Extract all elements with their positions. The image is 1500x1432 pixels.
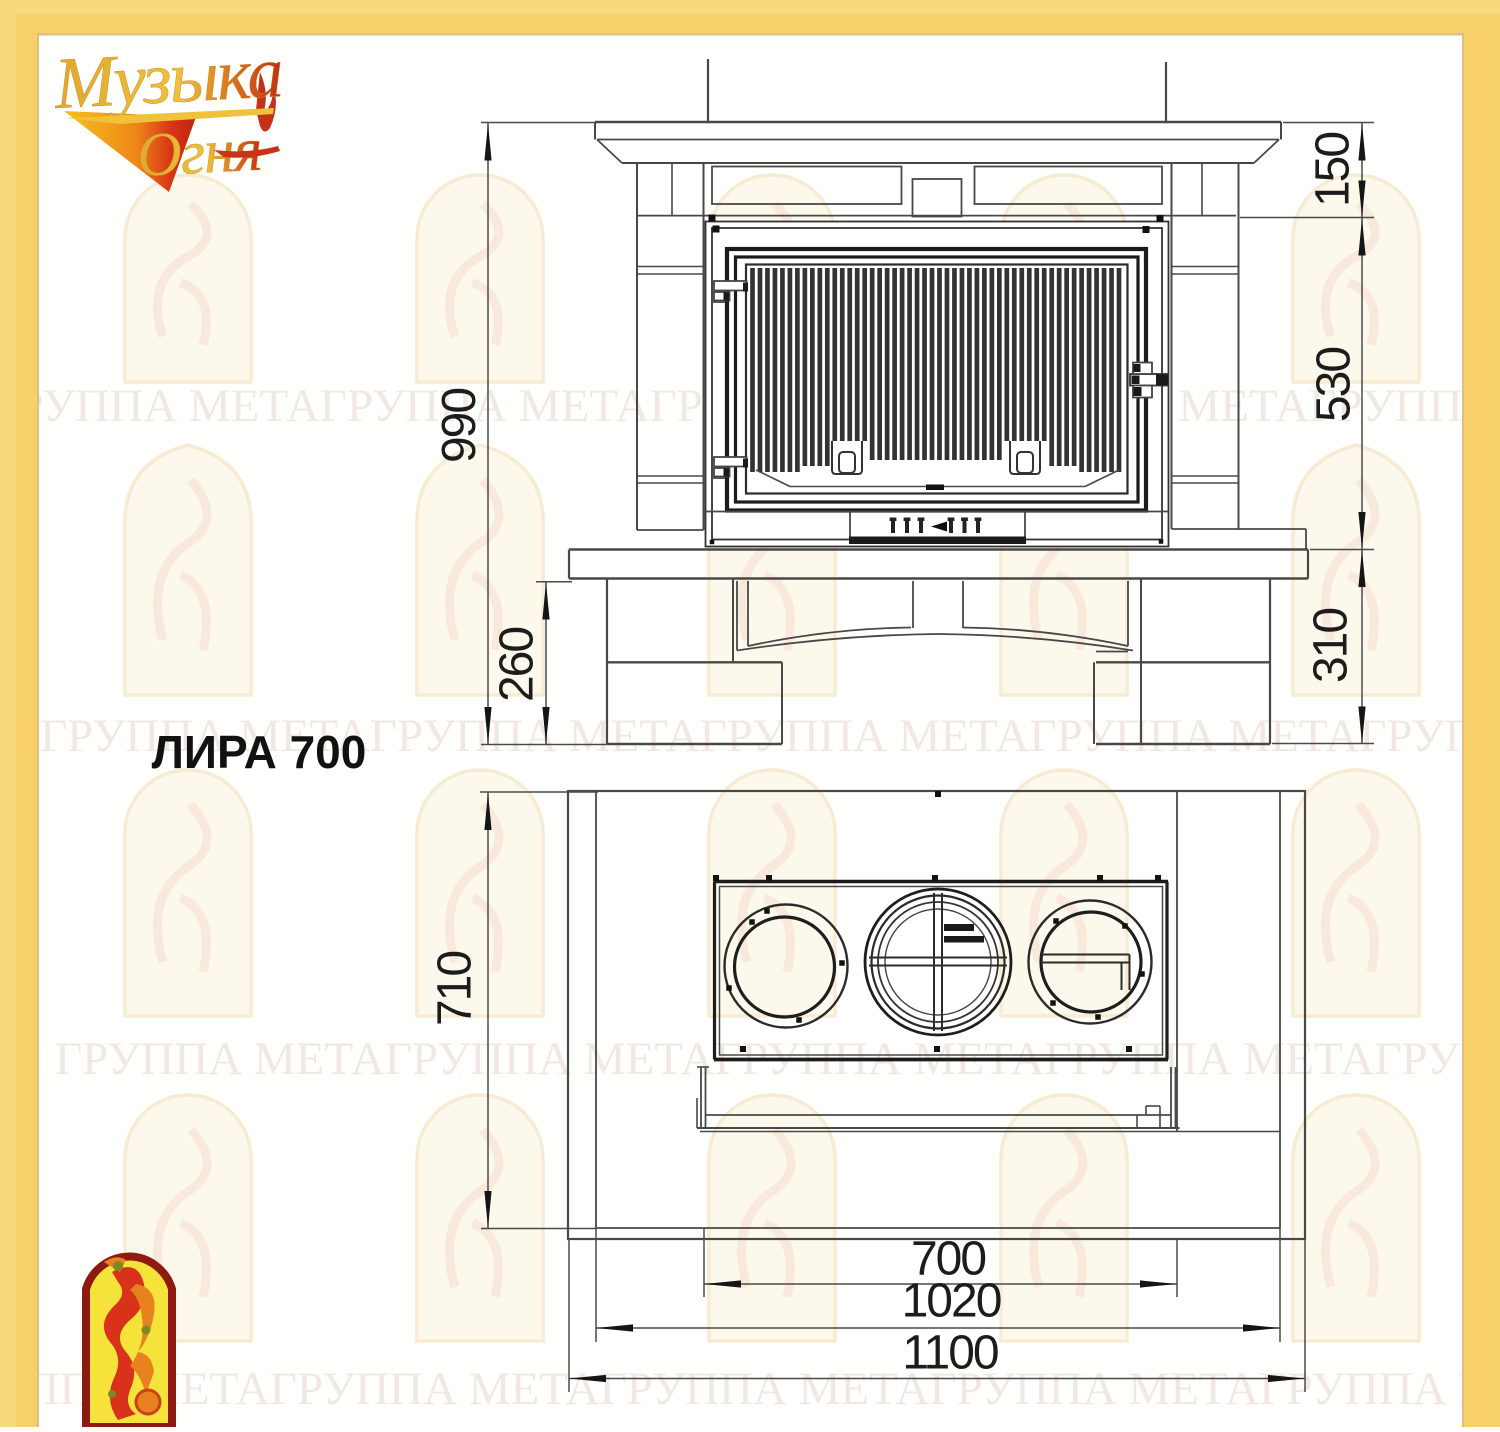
svg-text:530: 530 <box>1308 348 1361 422</box>
svg-text:ЛИРА 700: ЛИРА 700 <box>152 726 367 778</box>
svg-text:150: 150 <box>1307 133 1360 207</box>
svg-text:1020: 1020 <box>902 1275 1001 1328</box>
svg-text:990: 990 <box>433 389 486 463</box>
svg-text:ГРУППА МЕТАГРУППА МЕТАГРУППА М: ГРУППА МЕТАГРУППА МЕТАГРУППА МЕТАГРУППА … <box>0 1363 1500 1415</box>
svg-text:260: 260 <box>491 628 544 702</box>
svg-text:310: 310 <box>1305 609 1358 683</box>
svg-text:710: 710 <box>429 952 482 1026</box>
svg-text:1100: 1100 <box>902 1327 998 1380</box>
